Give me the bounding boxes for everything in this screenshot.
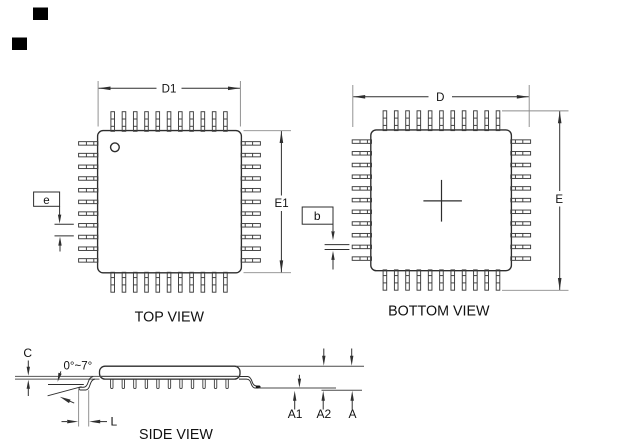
svg-text:C: C bbox=[23, 346, 32, 360]
svg-text:e: e bbox=[43, 195, 49, 207]
svg-text:0°~7°: 0°~7° bbox=[64, 360, 93, 372]
svg-text:D1: D1 bbox=[162, 83, 177, 95]
svg-text:E: E bbox=[555, 194, 563, 206]
svg-text:A1: A1 bbox=[288, 407, 303, 421]
svg-text:TOP VIEW: TOP VIEW bbox=[135, 309, 205, 325]
svg-text:BOTTOM VIEW: BOTTOM VIEW bbox=[388, 303, 490, 319]
svg-text:SIDE VIEW: SIDE VIEW bbox=[139, 427, 213, 443]
svg-text:E1: E1 bbox=[275, 198, 289, 210]
svg-text:A2: A2 bbox=[316, 407, 331, 421]
svg-text:D: D bbox=[436, 92, 444, 104]
svg-text:L: L bbox=[111, 415, 118, 429]
svg-text:b: b bbox=[314, 209, 321, 223]
svg-text:A: A bbox=[348, 407, 356, 421]
